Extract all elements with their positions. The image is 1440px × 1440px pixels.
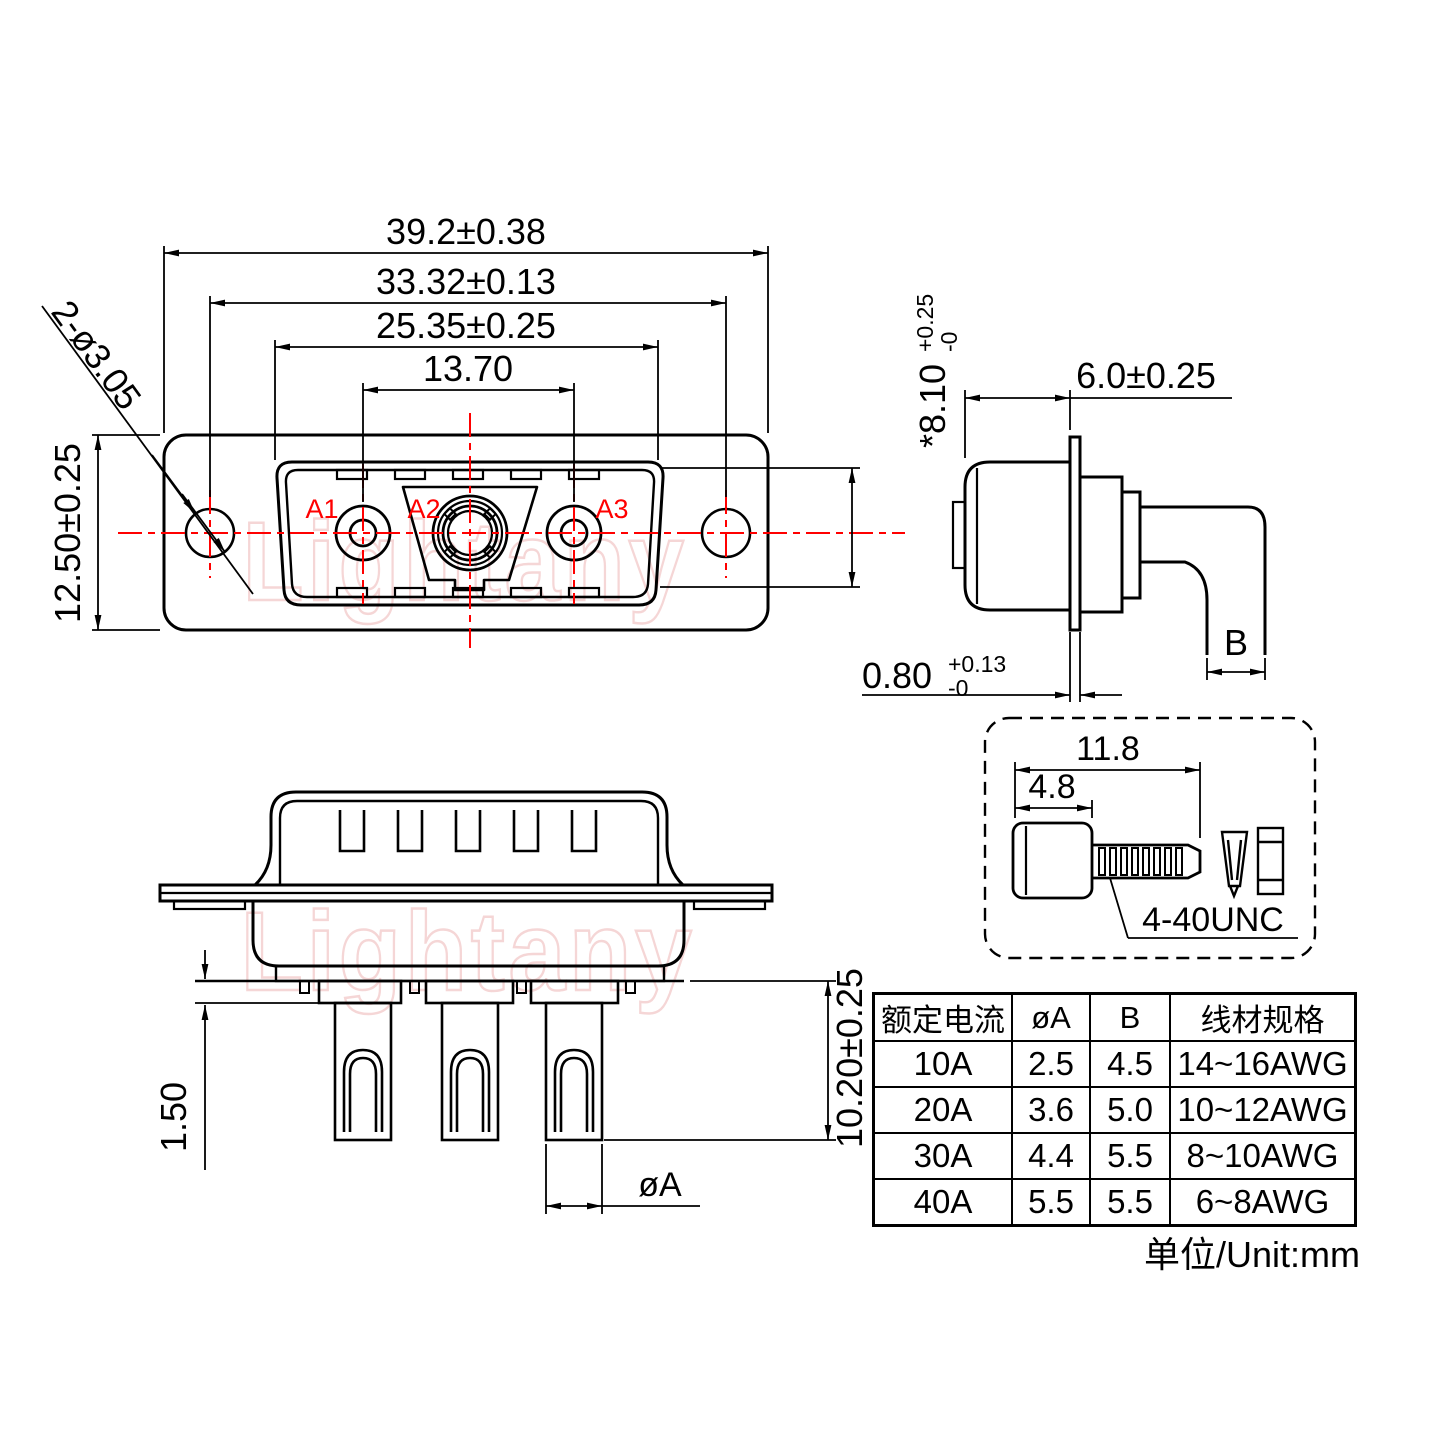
cell-current: 10A xyxy=(874,1041,1013,1087)
col-header-rated-current: 额定电流 xyxy=(874,994,1013,1042)
cell-dia-a: 5.5 xyxy=(1012,1179,1090,1226)
dim-opening-tol-dn: -0 xyxy=(936,332,962,352)
dim-mount: 33.32±0.13 xyxy=(376,261,556,302)
cell-wire: 8~10AWG xyxy=(1170,1133,1356,1179)
table-row: 30A 4.4 5.5 8~10AWG xyxy=(874,1133,1356,1179)
cell-current: 40A xyxy=(874,1179,1013,1226)
hood-inner xyxy=(280,801,658,885)
dim-cup-len: 10.20±0.25 xyxy=(829,968,870,1148)
cell-b: 5.0 xyxy=(1090,1087,1170,1133)
dim-screw-head: 4.8 xyxy=(1028,768,1075,806)
cell-current: 20A xyxy=(874,1087,1013,1133)
solder-cup-1 xyxy=(335,1003,391,1140)
cell-b: 5.5 xyxy=(1090,1133,1170,1179)
dim-opening: *8.10 xyxy=(912,364,953,448)
dim-contacts: 13.70 xyxy=(423,348,513,389)
bottom-view: 1.50 10.20±0.25 øA xyxy=(153,792,870,1214)
cell-dia-a: 3.6 xyxy=(1012,1087,1090,1133)
thread-label: 4-40UNC xyxy=(1142,901,1284,939)
cell-wire: 14~16AWG xyxy=(1170,1041,1356,1087)
dim-flange-tol-up: +0.13 xyxy=(948,651,1006,677)
dim-opening-tol-up: +0.25 xyxy=(912,294,938,352)
table-row: 20A 3.6 5.0 10~12AWG xyxy=(874,1087,1356,1133)
cell-b: 4.5 xyxy=(1090,1041,1170,1087)
dim-plate: 1.50 xyxy=(153,1082,194,1152)
cell-wire: 6~8AWG xyxy=(1170,1179,1356,1226)
dim-height: 12.50±0.25 xyxy=(47,443,88,623)
dim-width: 39.2±0.38 xyxy=(386,211,546,252)
watermark-bottom: Lightany xyxy=(241,889,696,1014)
dim-insert: 25.35±0.25 xyxy=(376,305,556,346)
technical-drawing-page: Lightany Lightany xyxy=(0,0,1440,1440)
dim-screw-length: 11.8 xyxy=(1076,730,1140,768)
a2-label: A2 xyxy=(407,494,440,524)
spec-table-header-row: 额定电流 øA B 线材规格 xyxy=(874,994,1356,1042)
table-row: 40A 5.5 5.5 6~8AWG xyxy=(874,1179,1356,1226)
unit-note: 单位/Unit:mm xyxy=(1035,1226,1360,1278)
wedge-part xyxy=(1222,832,1247,896)
dim-flange: 0.80 xyxy=(862,655,932,696)
hood-slots xyxy=(340,810,596,851)
cell-dia-a: 4.4 xyxy=(1012,1133,1090,1179)
dim-flange-tol-dn: -0 xyxy=(948,675,968,701)
table-row: 10A 2.5 4.5 14~16AWG xyxy=(874,1041,1356,1087)
cell-dia-a: 2.5 xyxy=(1012,1041,1090,1087)
dim-depth: 6.0±0.25 xyxy=(1076,355,1216,396)
solder-cup-3 xyxy=(546,1003,602,1140)
a3-label: A3 xyxy=(595,494,628,524)
col-header-dia-a: øA xyxy=(1012,994,1090,1042)
dim-holes: 2-ø3.05 xyxy=(44,293,150,417)
screw-shaft xyxy=(1092,845,1200,878)
spec-table: 额定电流 øA B 线材规格 10A 2.5 4.5 14~16AWG 20A … xyxy=(872,992,1357,1227)
solder-cup-2 xyxy=(442,1003,498,1140)
screw-head xyxy=(1013,823,1092,898)
col-header-wire-spec: 线材规格 xyxy=(1170,994,1356,1042)
cell-b: 5.5 xyxy=(1090,1179,1170,1226)
cell-current: 30A xyxy=(874,1133,1013,1179)
hood-outer xyxy=(255,792,683,885)
side-body xyxy=(965,462,1070,610)
a1-label: A1 xyxy=(305,494,338,524)
side-rear-step xyxy=(1122,492,1140,598)
screw-threads xyxy=(1099,848,1182,875)
screw-detail: 11.8 4.8 4-40UNC xyxy=(985,718,1315,958)
dim-cup-dia: øA xyxy=(638,1166,682,1204)
side-front-ridge xyxy=(953,502,965,568)
nut-part xyxy=(1258,828,1283,894)
dim-wire: B xyxy=(1224,622,1248,663)
side-rear-block xyxy=(1080,477,1122,612)
cell-wire: 10~12AWG xyxy=(1170,1087,1356,1133)
col-header-b: B xyxy=(1090,994,1170,1042)
